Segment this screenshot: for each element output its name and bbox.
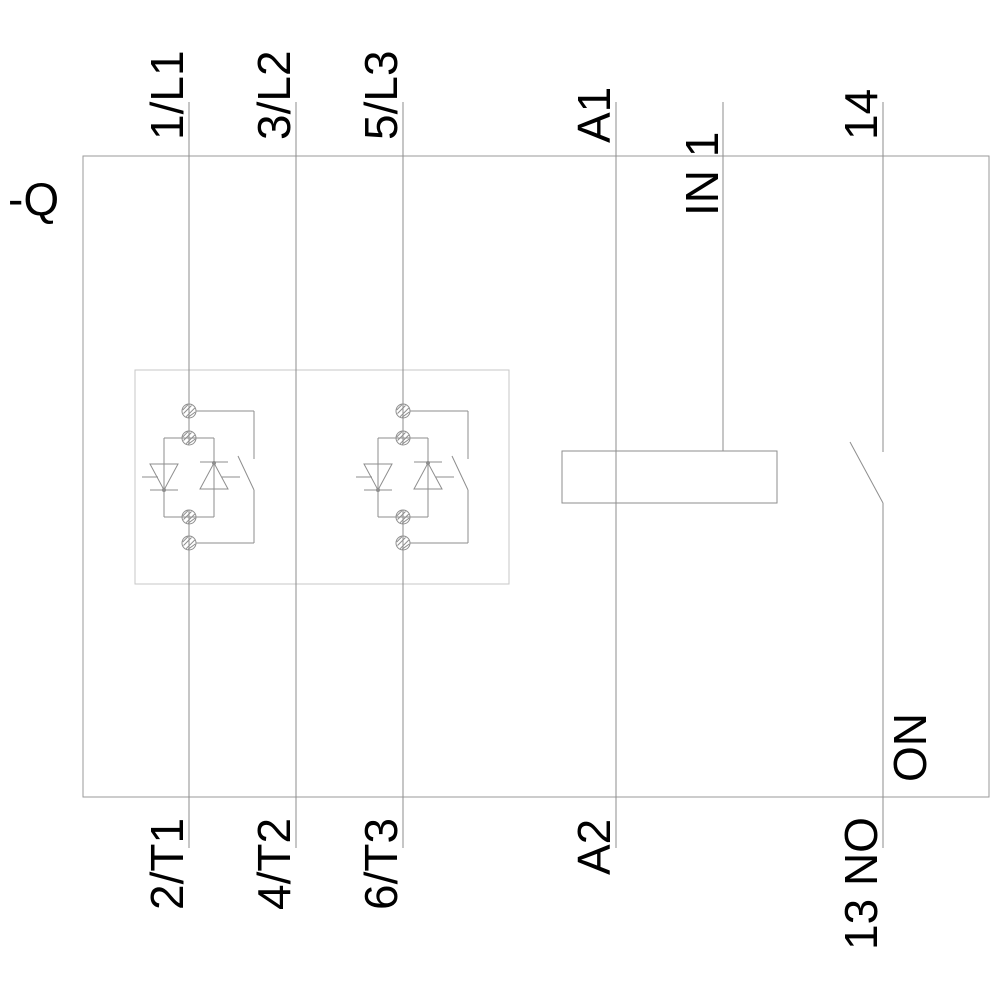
schematic-page: -Q 1/L1 3/L2 5/L3 A1 IN 1 14 2/T1 4/T2 6… bbox=[0, 0, 1000, 1000]
terminal-label-2t1: 2/T1 bbox=[141, 818, 193, 910]
control-wires bbox=[616, 102, 883, 848]
terminal-labels: -Q 1/L1 3/L2 5/L3 A1 IN 1 14 2/T1 4/T2 6… bbox=[8, 50, 936, 950]
contact-function-label-on: ON bbox=[884, 713, 936, 782]
soft-starter-schematic: -Q 1/L1 3/L2 5/L3 A1 IN 1 14 2/T1 4/T2 6… bbox=[0, 0, 1000, 1000]
control-coil bbox=[562, 451, 777, 503]
device-outline bbox=[83, 156, 989, 797]
terminal-label-5l3: 5/L3 bbox=[355, 50, 407, 140]
device-designator-label: -Q bbox=[8, 173, 59, 225]
power-wires bbox=[189, 102, 403, 848]
no-contact-blade bbox=[850, 442, 883, 503]
terminal-label-6t3: 6/T3 bbox=[355, 818, 407, 910]
thyristor-phase-assembly-l3 bbox=[356, 404, 468, 550]
terminal-label-14: 14 bbox=[835, 89, 887, 140]
thyristor-phase-assembly-l1 bbox=[142, 404, 254, 550]
terminal-label-4t2: 4/T2 bbox=[248, 818, 300, 910]
terminal-label-a2: A2 bbox=[568, 819, 620, 875]
terminal-label-1l1: 1/L1 bbox=[141, 50, 193, 140]
terminal-label-in1: IN 1 bbox=[676, 132, 728, 216]
terminal-label-a1: A1 bbox=[568, 87, 620, 143]
terminal-label-3l2: 3/L2 bbox=[248, 50, 300, 140]
terminal-label-13no: 13 NO bbox=[835, 817, 887, 950]
